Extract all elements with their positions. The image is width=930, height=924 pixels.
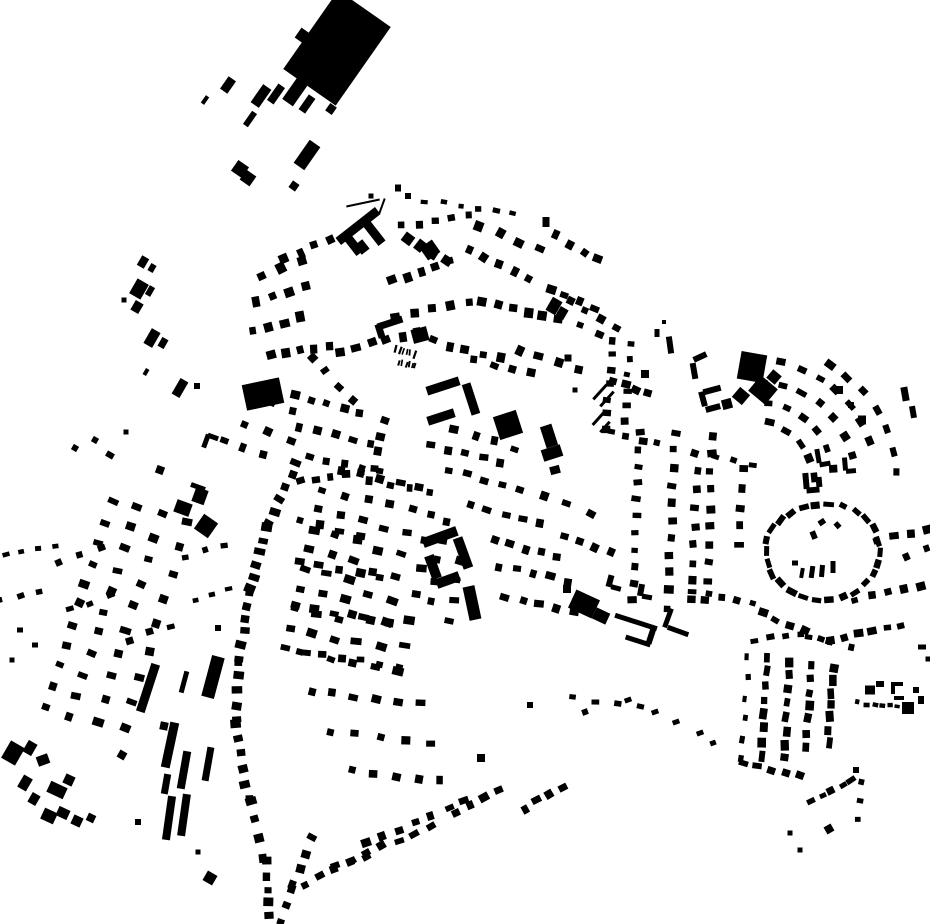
building-row bbox=[734, 465, 748, 548]
building-row bbox=[495, 563, 573, 586]
building bbox=[436, 776, 443, 785]
building bbox=[766, 633, 775, 640]
building-row bbox=[65, 590, 115, 612]
building bbox=[829, 465, 838, 473]
building bbox=[576, 321, 584, 329]
building bbox=[893, 468, 899, 475]
building bbox=[913, 687, 919, 693]
building bbox=[527, 702, 533, 708]
building bbox=[780, 753, 789, 761]
building bbox=[855, 699, 860, 705]
building bbox=[473, 220, 485, 232]
building bbox=[41, 703, 50, 712]
map-canvas bbox=[0, 0, 930, 924]
building bbox=[709, 740, 716, 747]
building bbox=[621, 379, 632, 389]
building bbox=[559, 291, 569, 299]
building-row bbox=[348, 766, 443, 785]
building bbox=[371, 694, 382, 704]
building-row bbox=[608, 377, 652, 398]
building bbox=[759, 708, 768, 720]
building bbox=[145, 627, 154, 636]
building bbox=[390, 572, 401, 581]
building bbox=[602, 409, 611, 416]
building bbox=[448, 425, 459, 435]
building bbox=[375, 432, 386, 442]
building bbox=[375, 840, 386, 851]
building bbox=[36, 753, 51, 767]
building bbox=[606, 547, 616, 557]
building bbox=[718, 594, 725, 601]
building bbox=[592, 253, 604, 264]
building bbox=[240, 615, 249, 624]
building bbox=[866, 626, 877, 635]
building bbox=[18, 549, 25, 555]
building bbox=[263, 897, 273, 906]
building bbox=[196, 850, 201, 855]
building bbox=[829, 675, 837, 686]
building bbox=[234, 640, 246, 650]
building bbox=[803, 453, 814, 464]
building-row bbox=[802, 661, 814, 752]
building bbox=[231, 701, 242, 710]
building bbox=[785, 658, 793, 668]
building bbox=[664, 606, 671, 613]
building bbox=[824, 726, 831, 735]
building-row bbox=[607, 428, 660, 446]
building-row bbox=[64, 502, 143, 722]
building bbox=[245, 588, 254, 596]
building bbox=[182, 554, 189, 560]
building bbox=[307, 352, 319, 364]
building bbox=[805, 700, 814, 710]
building bbox=[721, 398, 733, 410]
building bbox=[172, 378, 189, 398]
building bbox=[62, 641, 72, 650]
building-row bbox=[192, 586, 232, 603]
building bbox=[386, 595, 399, 606]
building bbox=[806, 674, 814, 682]
building bbox=[797, 365, 808, 375]
building bbox=[295, 648, 304, 656]
building bbox=[220, 542, 228, 548]
building bbox=[365, 615, 375, 625]
building bbox=[533, 351, 544, 360]
building bbox=[1, 740, 25, 765]
building bbox=[608, 351, 616, 356]
building bbox=[202, 870, 217, 885]
building bbox=[476, 296, 487, 306]
building bbox=[545, 284, 557, 295]
building bbox=[427, 597, 435, 605]
building bbox=[158, 594, 169, 605]
building bbox=[785, 586, 798, 597]
building bbox=[863, 703, 869, 708]
building bbox=[475, 206, 481, 212]
building bbox=[796, 439, 806, 450]
building-row bbox=[855, 699, 900, 709]
building bbox=[704, 558, 713, 565]
building bbox=[655, 329, 660, 337]
building bbox=[788, 831, 793, 836]
building-row bbox=[397, 359, 416, 368]
building bbox=[868, 591, 876, 600]
building bbox=[402, 272, 413, 284]
building-row bbox=[2, 543, 59, 557]
building-row bbox=[290, 601, 394, 628]
building bbox=[809, 566, 816, 579]
building bbox=[335, 566, 343, 574]
building bbox=[124, 430, 129, 435]
building bbox=[889, 447, 897, 457]
building bbox=[288, 470, 298, 480]
building-row bbox=[902, 544, 930, 561]
building-row bbox=[551, 229, 604, 264]
building bbox=[312, 425, 322, 435]
building bbox=[328, 688, 337, 697]
building bbox=[442, 518, 450, 527]
building bbox=[691, 523, 700, 531]
building bbox=[622, 433, 630, 440]
building bbox=[276, 918, 285, 924]
building bbox=[781, 768, 791, 777]
building bbox=[399, 642, 411, 649]
building bbox=[208, 592, 215, 598]
building bbox=[253, 547, 265, 556]
building bbox=[499, 593, 510, 602]
building bbox=[334, 382, 345, 393]
building bbox=[296, 345, 305, 354]
building bbox=[735, 505, 745, 513]
building bbox=[524, 274, 534, 284]
building bbox=[709, 432, 718, 441]
building bbox=[411, 818, 420, 826]
building bbox=[797, 632, 804, 638]
building-row bbox=[780, 658, 793, 762]
building bbox=[700, 596, 709, 604]
building bbox=[386, 481, 394, 489]
building bbox=[136, 579, 147, 589]
building bbox=[784, 698, 791, 707]
building bbox=[848, 643, 855, 651]
building bbox=[249, 327, 256, 335]
building-row bbox=[308, 687, 426, 706]
building-row bbox=[392, 510, 436, 676]
building bbox=[286, 625, 296, 633]
building bbox=[549, 465, 561, 475]
building bbox=[460, 449, 469, 457]
building bbox=[77, 671, 88, 680]
building bbox=[35, 546, 41, 551]
building bbox=[825, 786, 835, 796]
building bbox=[428, 304, 437, 313]
building bbox=[194, 514, 218, 538]
building bbox=[417, 267, 426, 278]
building-row bbox=[872, 524, 930, 545]
building bbox=[607, 367, 616, 374]
building bbox=[884, 588, 893, 596]
building bbox=[331, 429, 342, 439]
building bbox=[690, 449, 700, 458]
building bbox=[766, 522, 776, 534]
building bbox=[827, 688, 834, 699]
building bbox=[398, 222, 405, 229]
building bbox=[861, 513, 872, 524]
building bbox=[266, 349, 277, 360]
building bbox=[236, 749, 245, 757]
building bbox=[513, 565, 522, 572]
building bbox=[815, 398, 825, 408]
building-row bbox=[251, 281, 311, 308]
building bbox=[776, 357, 787, 366]
building bbox=[581, 306, 590, 314]
building bbox=[314, 870, 325, 880]
building bbox=[286, 436, 297, 446]
building bbox=[242, 602, 252, 612]
building bbox=[573, 388, 578, 393]
building bbox=[201, 655, 224, 699]
building bbox=[540, 424, 558, 449]
building bbox=[703, 385, 722, 395]
building bbox=[99, 609, 108, 616]
building bbox=[341, 459, 349, 467]
building bbox=[411, 590, 421, 598]
building bbox=[580, 248, 590, 258]
building bbox=[70, 692, 81, 701]
building bbox=[585, 509, 596, 519]
building bbox=[539, 491, 550, 502]
building bbox=[161, 774, 171, 795]
building bbox=[812, 597, 822, 603]
building bbox=[399, 332, 408, 343]
building-row bbox=[125, 623, 175, 645]
figure-ground-map bbox=[0, 0, 930, 924]
building bbox=[375, 641, 388, 652]
building bbox=[551, 229, 561, 240]
building bbox=[309, 240, 318, 249]
building bbox=[326, 728, 334, 736]
building bbox=[537, 547, 545, 556]
building bbox=[763, 665, 771, 676]
building bbox=[551, 603, 561, 614]
building bbox=[395, 185, 401, 192]
building bbox=[233, 734, 243, 743]
building bbox=[126, 698, 138, 707]
building bbox=[250, 814, 260, 823]
building bbox=[478, 791, 491, 803]
building bbox=[782, 633, 790, 640]
building bbox=[631, 563, 639, 571]
building bbox=[496, 458, 505, 467]
building bbox=[412, 350, 417, 359]
building bbox=[414, 774, 423, 784]
building bbox=[627, 341, 634, 347]
building bbox=[250, 560, 262, 570]
building bbox=[596, 313, 607, 324]
building bbox=[816, 374, 826, 383]
building bbox=[408, 505, 418, 514]
building bbox=[810, 472, 818, 482]
building bbox=[865, 686, 875, 695]
building bbox=[636, 703, 644, 710]
building bbox=[173, 499, 192, 517]
building bbox=[409, 349, 411, 355]
building bbox=[463, 585, 482, 621]
building bbox=[145, 647, 155, 657]
building bbox=[792, 561, 798, 566]
building bbox=[326, 655, 335, 663]
building-row bbox=[234, 588, 254, 662]
building bbox=[839, 502, 848, 510]
building bbox=[269, 507, 282, 517]
building bbox=[318, 651, 327, 658]
building bbox=[785, 621, 795, 630]
building bbox=[157, 337, 168, 349]
building bbox=[453, 577, 460, 583]
building bbox=[805, 689, 813, 698]
building bbox=[311, 476, 320, 484]
building bbox=[757, 738, 766, 748]
building bbox=[322, 399, 330, 407]
building bbox=[508, 364, 517, 373]
building bbox=[827, 700, 834, 709]
building-row bbox=[514, 345, 583, 375]
building bbox=[280, 482, 290, 491]
building bbox=[814, 449, 821, 464]
building bbox=[494, 299, 504, 309]
building bbox=[416, 564, 427, 572]
building-row bbox=[520, 783, 568, 815]
building bbox=[347, 555, 359, 565]
building bbox=[427, 510, 436, 518]
building bbox=[440, 254, 453, 267]
building bbox=[798, 593, 809, 601]
building bbox=[670, 464, 679, 473]
building-row bbox=[824, 663, 839, 748]
building bbox=[819, 792, 827, 799]
building bbox=[758, 607, 770, 617]
building bbox=[35, 588, 42, 595]
building bbox=[824, 824, 835, 835]
building bbox=[71, 444, 79, 452]
building bbox=[299, 94, 316, 113]
building bbox=[336, 511, 345, 519]
building bbox=[274, 261, 287, 275]
building-row bbox=[428, 335, 506, 363]
building bbox=[662, 320, 666, 324]
building bbox=[667, 498, 675, 507]
building bbox=[569, 606, 580, 616]
building bbox=[853, 767, 859, 773]
building bbox=[70, 814, 83, 827]
building bbox=[894, 704, 900, 708]
building bbox=[426, 489, 433, 497]
building-row bbox=[182, 542, 228, 560]
building bbox=[88, 560, 98, 569]
building bbox=[394, 826, 404, 835]
building bbox=[137, 255, 149, 269]
building bbox=[348, 395, 359, 406]
building bbox=[240, 420, 249, 429]
building bbox=[783, 684, 792, 693]
building bbox=[300, 881, 309, 890]
building bbox=[358, 515, 369, 524]
building bbox=[405, 193, 411, 199]
building bbox=[367, 337, 378, 347]
building-row bbox=[295, 468, 364, 484]
building bbox=[432, 217, 439, 224]
building bbox=[839, 431, 851, 443]
building bbox=[369, 770, 378, 778]
building bbox=[744, 653, 748, 660]
building bbox=[531, 795, 543, 805]
building bbox=[778, 382, 788, 390]
building bbox=[263, 872, 270, 881]
building bbox=[734, 542, 744, 548]
building bbox=[643, 388, 653, 397]
building bbox=[386, 274, 398, 285]
building bbox=[630, 385, 641, 396]
building bbox=[355, 568, 366, 578]
building bbox=[91, 436, 99, 444]
building bbox=[765, 558, 773, 568]
building bbox=[510, 266, 520, 278]
building bbox=[202, 546, 209, 553]
building bbox=[799, 503, 810, 511]
building bbox=[414, 483, 424, 492]
building bbox=[782, 404, 792, 413]
building bbox=[838, 592, 848, 602]
building bbox=[802, 730, 810, 738]
building-row bbox=[390, 298, 473, 321]
building bbox=[873, 559, 882, 569]
building bbox=[362, 220, 385, 246]
building bbox=[893, 682, 903, 686]
building bbox=[155, 465, 165, 475]
building bbox=[589, 542, 600, 553]
building bbox=[783, 726, 791, 737]
building bbox=[113, 649, 123, 658]
building bbox=[364, 495, 373, 504]
building-row bbox=[243, 522, 273, 594]
building bbox=[321, 570, 332, 577]
building bbox=[909, 406, 917, 419]
building bbox=[477, 754, 485, 762]
building bbox=[574, 365, 583, 374]
building bbox=[781, 711, 789, 722]
building bbox=[151, 618, 162, 629]
building bbox=[732, 596, 741, 605]
building bbox=[543, 789, 554, 800]
building bbox=[86, 600, 94, 607]
building bbox=[230, 719, 241, 728]
building bbox=[785, 508, 796, 519]
building bbox=[240, 627, 250, 634]
building bbox=[492, 207, 500, 214]
building bbox=[688, 576, 696, 585]
building bbox=[65, 605, 74, 612]
building bbox=[378, 525, 389, 533]
building-row bbox=[370, 505, 418, 672]
building bbox=[907, 529, 915, 538]
building bbox=[119, 543, 131, 553]
building-row bbox=[855, 779, 865, 822]
building-row bbox=[41, 497, 119, 712]
building-row bbox=[738, 653, 751, 762]
building bbox=[350, 343, 361, 353]
building bbox=[234, 659, 242, 666]
building bbox=[430, 262, 440, 272]
